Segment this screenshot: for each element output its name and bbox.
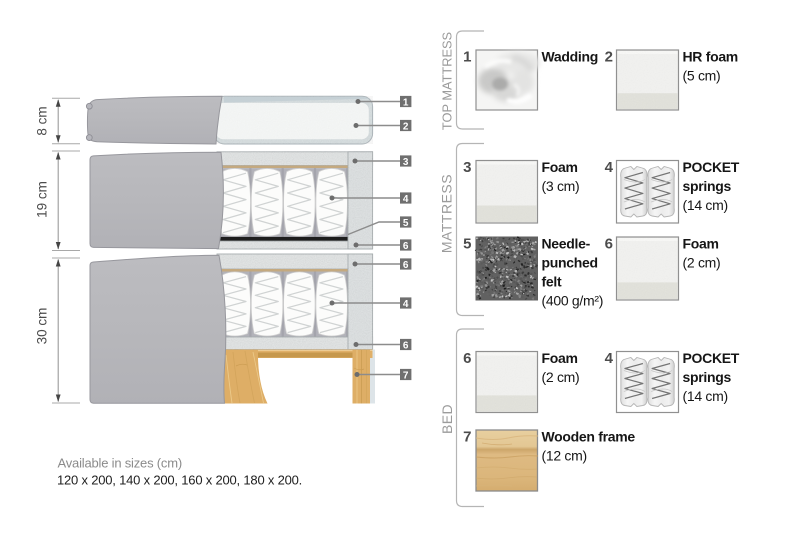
svg-text:springs: springs	[683, 369, 732, 385]
svg-text:TOP MATTRESS: TOP MATTRESS	[440, 32, 455, 130]
svg-text:3: 3	[403, 157, 409, 168]
svg-text:7: 7	[463, 429, 471, 446]
svg-text:Foam: Foam	[683, 236, 719, 252]
svg-text:6: 6	[605, 236, 613, 253]
svg-text:5: 5	[463, 236, 471, 253]
svg-text:120 x 200, 140 x 200, 160 x 20: 120 x 200, 140 x 200, 160 x 200, 180 x 2…	[57, 473, 302, 488]
svg-text:1: 1	[403, 98, 409, 109]
svg-text:(14 cm): (14 cm)	[683, 197, 728, 213]
svg-text:(3 cm): (3 cm)	[542, 178, 580, 194]
svg-text:2: 2	[403, 122, 409, 133]
svg-text:POCKET: POCKET	[683, 350, 740, 366]
svg-text:2: 2	[605, 49, 613, 66]
svg-text:(2 cm): (2 cm)	[542, 369, 580, 385]
svg-text:Wooden frame: Wooden frame	[542, 429, 636, 445]
svg-text:19 cm: 19 cm	[35, 181, 50, 218]
svg-text:4: 4	[605, 159, 614, 176]
svg-text:6: 6	[403, 260, 409, 271]
svg-text:4: 4	[403, 194, 409, 205]
svg-text:4: 4	[403, 299, 409, 310]
svg-text:Foam: Foam	[542, 350, 578, 366]
svg-text:Foam: Foam	[542, 159, 578, 175]
svg-text:(12 cm): (12 cm)	[542, 448, 587, 464]
svg-text:(2 cm): (2 cm)	[683, 255, 721, 271]
svg-text:7: 7	[403, 371, 409, 382]
svg-text:(5 cm): (5 cm)	[683, 68, 721, 84]
svg-text:MATTRESS: MATTRESS	[439, 174, 455, 253]
svg-text:felt: felt	[542, 274, 562, 290]
svg-text:6: 6	[403, 241, 409, 252]
svg-text:(400 g/m²): (400 g/m²)	[542, 293, 604, 309]
svg-text:6: 6	[463, 350, 471, 367]
svg-text:Needle-: Needle-	[542, 236, 591, 252]
svg-text:5: 5	[403, 218, 409, 229]
svg-text:BED: BED	[439, 404, 455, 434]
svg-text:8 cm: 8 cm	[35, 106, 50, 135]
svg-text:Available in sizes (cm): Available in sizes (cm)	[58, 456, 182, 471]
svg-text:6: 6	[403, 341, 409, 352]
svg-text:springs: springs	[683, 178, 732, 194]
svg-text:punched: punched	[542, 255, 598, 271]
svg-text:HR foam: HR foam	[683, 49, 738, 65]
svg-text:POCKET: POCKET	[683, 159, 740, 175]
svg-text:Wadding: Wadding	[542, 49, 598, 65]
svg-text:(14 cm): (14 cm)	[683, 388, 728, 404]
svg-text:30 cm: 30 cm	[35, 308, 50, 345]
svg-text:3: 3	[463, 159, 471, 176]
svg-text:4: 4	[605, 350, 614, 367]
svg-text:1: 1	[463, 49, 471, 66]
